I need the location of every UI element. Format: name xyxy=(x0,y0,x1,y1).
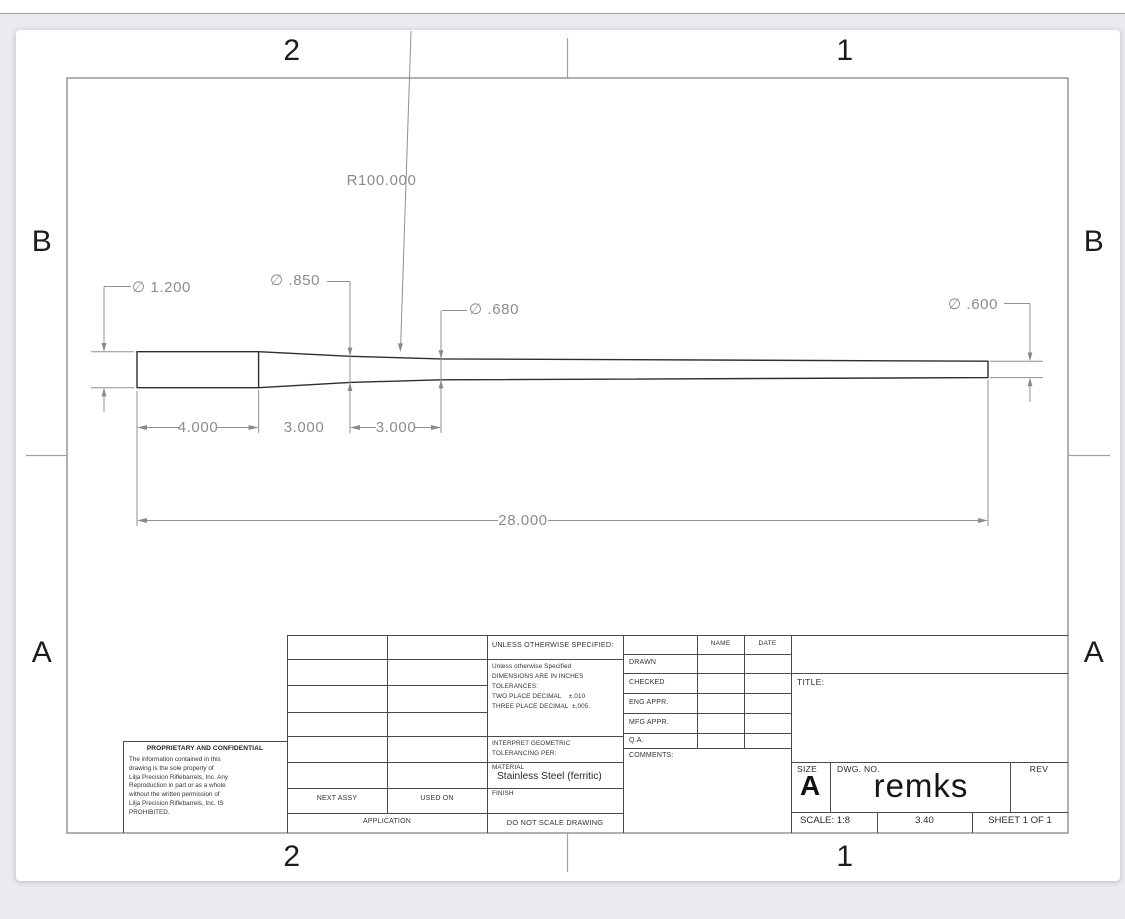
material-value: Stainless Steel (ferritic) xyxy=(497,771,602,782)
approval-row-drawn: DRAWN xyxy=(629,659,656,666)
proprietary-body: The information contained in this drawin… xyxy=(129,756,228,818)
used-on-label: USED ON xyxy=(387,795,487,802)
weight-value: 3.40 xyxy=(877,815,972,826)
approval-row-checked: CHECKED xyxy=(629,679,665,686)
size-value: A xyxy=(800,770,820,802)
zone-label-right-b: B xyxy=(1072,225,1116,259)
zone-label-bottom-2: 2 xyxy=(270,840,314,874)
finish-label: FINISH xyxy=(492,790,514,797)
dim-dia-transition: ∅ .680 xyxy=(469,300,519,318)
sheet-number: SHEET 1 OF 1 xyxy=(972,815,1068,826)
unless-specified-label: UNLESS OTHERWISE SPECIFIED: xyxy=(492,640,622,649)
dim-radius-label: R100.000 xyxy=(334,172,429,189)
approval-row-qa: Q.A. xyxy=(629,737,644,744)
material-label: MATERIAL xyxy=(492,764,524,771)
dimension-arrowheads xyxy=(102,343,1033,523)
drawing-viewer: 2 1 2 1 B A B A R100.000 ∅ 1.200 ∅ .850 … xyxy=(0,0,1125,919)
sheet-border xyxy=(67,78,1068,833)
next-assy-label: NEXT ASSY xyxy=(287,795,387,802)
title-label: TITLE: xyxy=(797,677,824,687)
dim-dia-breech: ∅ 1.200 xyxy=(132,278,191,296)
rev-label: REV xyxy=(1010,764,1068,774)
dim-len-taper1: 3.000 xyxy=(282,419,326,436)
dim-dia-muzzle: ∅ .600 xyxy=(948,295,998,313)
dim-len-overall: 28.000 xyxy=(497,512,549,529)
interpret-geometric-label: INTERPRET GEOMETRIC TOLERANCING PER: xyxy=(492,739,570,758)
name-column-header: NAME xyxy=(697,640,744,647)
approval-row-eng-appr: ENG APPR. xyxy=(629,699,669,706)
dim-len-taper2: 3.000 xyxy=(374,419,418,436)
tolerance-notes: Unless otherwise Specified DIMENSIONS AR… xyxy=(492,662,590,712)
proprietary-heading: PROPRIETARY AND CONFIDENTIAL xyxy=(123,745,287,752)
scale-value: SCALE: 1:8 xyxy=(800,815,850,826)
dim-dia-mid: ∅ .850 xyxy=(270,271,320,289)
approval-row-mfg-appr: MFG APPR. xyxy=(629,719,669,726)
comments-label: COMMENTS: xyxy=(629,752,674,759)
zone-label-bottom-1: 1 xyxy=(823,840,867,874)
zone-label-right-a: A xyxy=(1072,636,1116,670)
zone-label-left-b: B xyxy=(20,225,64,259)
dim-len-cylinder: 4.000 xyxy=(176,419,220,436)
dimension-lines xyxy=(91,31,1043,526)
application-label: APPLICATION xyxy=(287,818,487,825)
zone-label-left-a: A xyxy=(20,636,64,670)
zone-label-top-2: 2 xyxy=(270,34,314,68)
do-not-scale-label: DO NOT SCALE DRAWING xyxy=(487,818,623,827)
date-column-header: DATE xyxy=(744,640,791,647)
dwg-no-value: remks xyxy=(831,767,1011,805)
zone-label-top-1: 1 xyxy=(823,34,867,68)
barrel-profile xyxy=(137,352,988,388)
